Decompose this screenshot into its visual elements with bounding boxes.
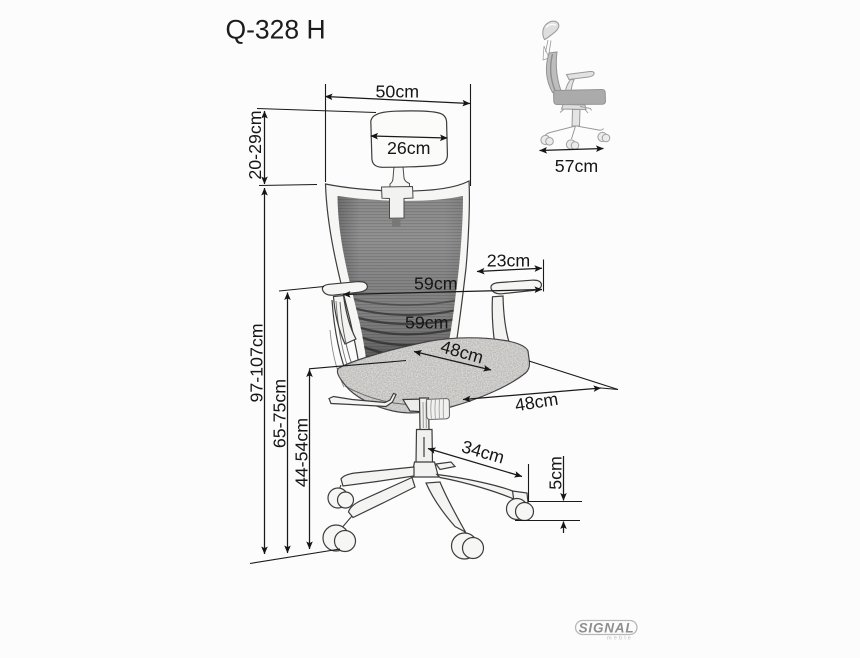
svg-text:59cm: 59cm xyxy=(414,274,457,294)
svg-text:34cm: 34cm xyxy=(459,436,506,467)
svg-text:23cm: 23cm xyxy=(487,251,530,271)
svg-text:26cm: 26cm xyxy=(387,138,430,158)
svg-text:meble: meble xyxy=(607,636,633,642)
svg-text:59cm: 59cm xyxy=(405,313,448,333)
svg-text:57cm: 57cm xyxy=(555,156,598,176)
svg-text:44-54cm: 44-54cm xyxy=(292,418,312,487)
svg-text:SIGNAL: SIGNAL xyxy=(579,620,635,635)
svg-text:65-75cm: 65-75cm xyxy=(270,379,290,448)
svg-text:20-29cm: 20-29cm xyxy=(245,110,265,179)
svg-text:5cm: 5cm xyxy=(546,456,566,490)
svg-text:Q-328 H: Q-328 H xyxy=(226,15,326,45)
svg-text:48cm: 48cm xyxy=(513,389,559,416)
svg-text:50cm: 50cm xyxy=(376,82,419,102)
svg-text:97-107cm: 97-107cm xyxy=(247,323,267,402)
